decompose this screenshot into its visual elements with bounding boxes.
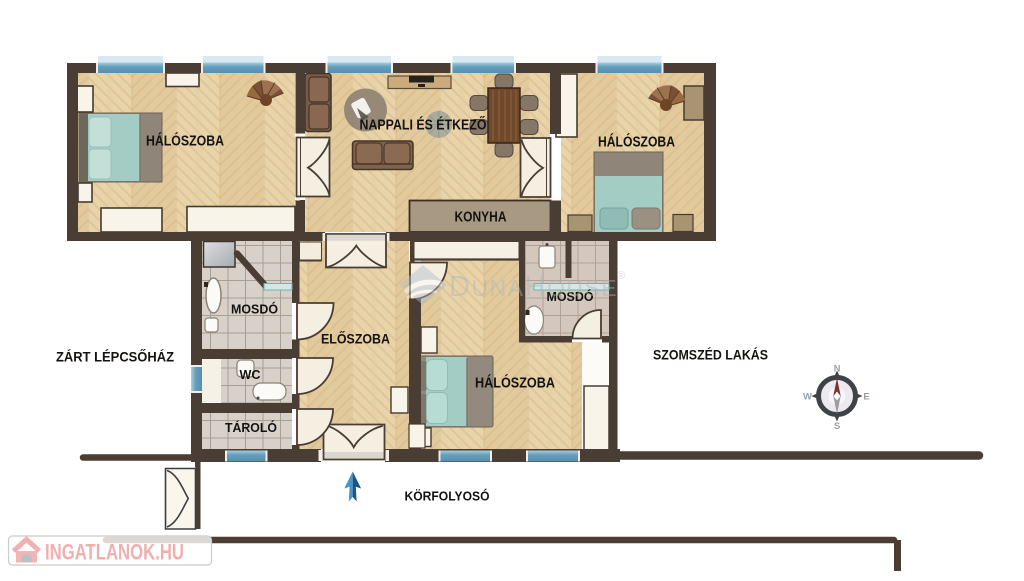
svg-text:NAPPALI ÉS ÉTKEZŐ: NAPPALI ÉS ÉTKEZŐ: [360, 116, 487, 134]
svg-text:INGATLANOK.HU: INGATLANOK.HU: [45, 540, 184, 565]
svg-text:W: W: [803, 392, 812, 403]
svg-text:KONYHA: KONYHA: [455, 210, 507, 226]
svg-text:ELŐSZOBA: ELŐSZOBA: [321, 330, 390, 347]
svg-text:N: N: [834, 364, 841, 375]
svg-text:SZOMSZÉD LAKÁS: SZOMSZÉD LAKÁS: [653, 348, 768, 363]
svg-text:DUNAHOUSE: DUNAHOUSE: [449, 271, 618, 303]
svg-text:MOSDÓ: MOSDÓ: [231, 302, 278, 317]
svg-text:ZÁRT LÉPCSŐHÁZ: ZÁRT LÉPCSŐHÁZ: [56, 350, 174, 365]
svg-text:TÁROLÓ: TÁROLÓ: [225, 420, 277, 435]
svg-text:KÖRFOLYOSÓ: KÖRFOLYOSÓ: [405, 489, 490, 504]
svg-text:WC: WC: [240, 367, 262, 382]
svg-text:E: E: [863, 392, 869, 403]
svg-text:®: ®: [617, 270, 625, 282]
svg-text:HÁLÓSZOBA: HÁLÓSZOBA: [598, 133, 675, 151]
svg-text:HÁLÓSZOBA: HÁLÓSZOBA: [475, 374, 555, 392]
svg-text:HÁLÓSZOBA: HÁLÓSZOBA: [146, 132, 224, 150]
svg-text:S: S: [834, 421, 840, 432]
